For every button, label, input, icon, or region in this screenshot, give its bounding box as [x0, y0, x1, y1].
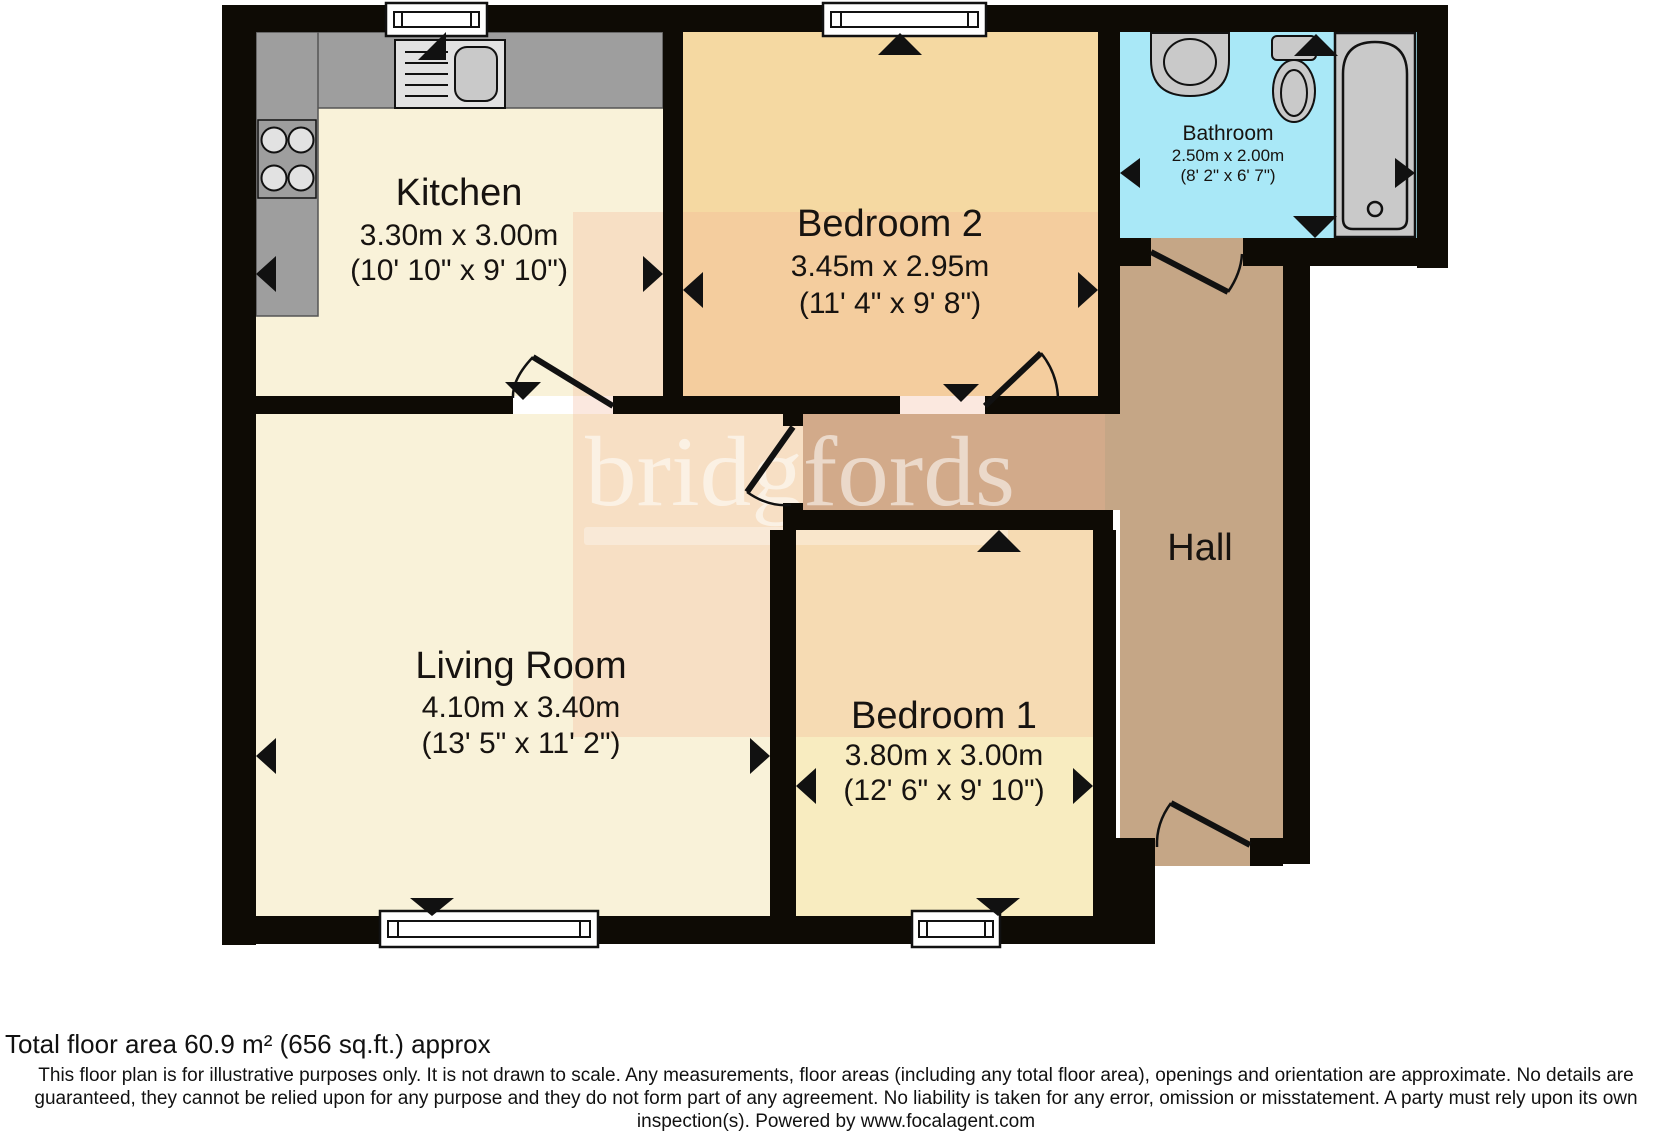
- living-room-label: Living Room 4.10m x 3.40m (13' 5" x 11' …: [415, 645, 626, 760]
- floorplan-diagram: bridgfords: [0, 0, 1672, 970]
- sink-icon: [395, 40, 505, 108]
- bathroom-name: Bathroom: [1182, 122, 1273, 145]
- bedroom2-name: Bedroom 2: [797, 203, 983, 245]
- kitchen-name: Kitchen: [396, 172, 523, 214]
- living-room-window: [380, 911, 598, 947]
- bedroom2-metric: 3.45m x 2.95m: [791, 250, 989, 283]
- kitchen-imperial: (10' 10" x 9' 10"): [350, 254, 568, 287]
- living-room-metric: 4.10m x 3.40m: [422, 691, 620, 724]
- bedroom1-imperial: (12' 6" x 9' 10"): [843, 774, 1044, 807]
- living-room-imperial: (13' 5" x 11' 2"): [422, 727, 621, 760]
- bathtub-icon: [1335, 33, 1415, 237]
- hall-name: Hall: [1167, 527, 1232, 569]
- kitchen-window: [386, 3, 487, 36]
- bedroom1-label: Bedroom 1 3.80m x 3.00m (12' 6" x 9' 10"…: [843, 695, 1044, 807]
- total-floor-area: Total floor area 60.9 m² (656 sq.ft.) ap…: [5, 1029, 491, 1060]
- bedroom1-name: Bedroom 1: [851, 695, 1037, 737]
- bathroom-metric: 2.50m x 2.00m: [1172, 146, 1284, 165]
- bathroom-label: Bathroom 2.50m x 2.00m (8' 2" x 6' 7"): [1172, 122, 1284, 185]
- bedroom1-window: [912, 911, 1000, 947]
- bedroom2-window: [823, 3, 986, 36]
- bedroom1-metric: 3.80m x 3.00m: [845, 739, 1043, 772]
- bedroom2-imperial: (11' 4" x 9' 8"): [799, 287, 981, 320]
- floorplan-page: bridgfords: [0, 0, 1672, 1136]
- kitchen-metric: 3.30m x 3.00m: [360, 219, 558, 252]
- basin-icon: [1151, 33, 1229, 96]
- hob-icon: [258, 120, 316, 198]
- bedroom2-label: Bedroom 2 3.45m x 2.95m (11' 4" x 9' 8"): [791, 203, 989, 320]
- bathroom-imperial: (8' 2" x 6' 7"): [1180, 166, 1275, 185]
- living-room-name: Living Room: [415, 645, 626, 687]
- disclaimer-text: This floor plan is for illustrative purp…: [0, 1064, 1672, 1133]
